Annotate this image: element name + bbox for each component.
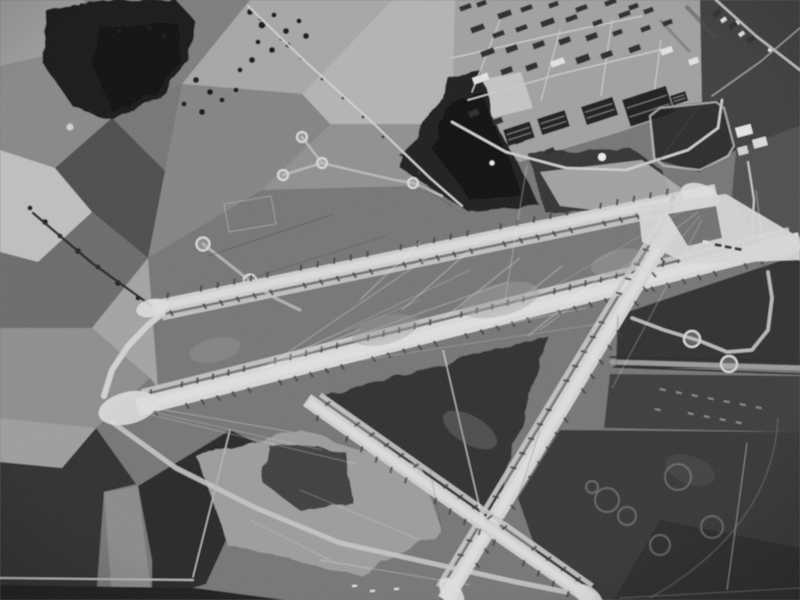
aerial-photo-svg <box>0 0 800 600</box>
screenshot-canvas <box>0 0 800 600</box>
aerial-photo <box>0 0 800 600</box>
vignette-overlay <box>0 0 800 600</box>
